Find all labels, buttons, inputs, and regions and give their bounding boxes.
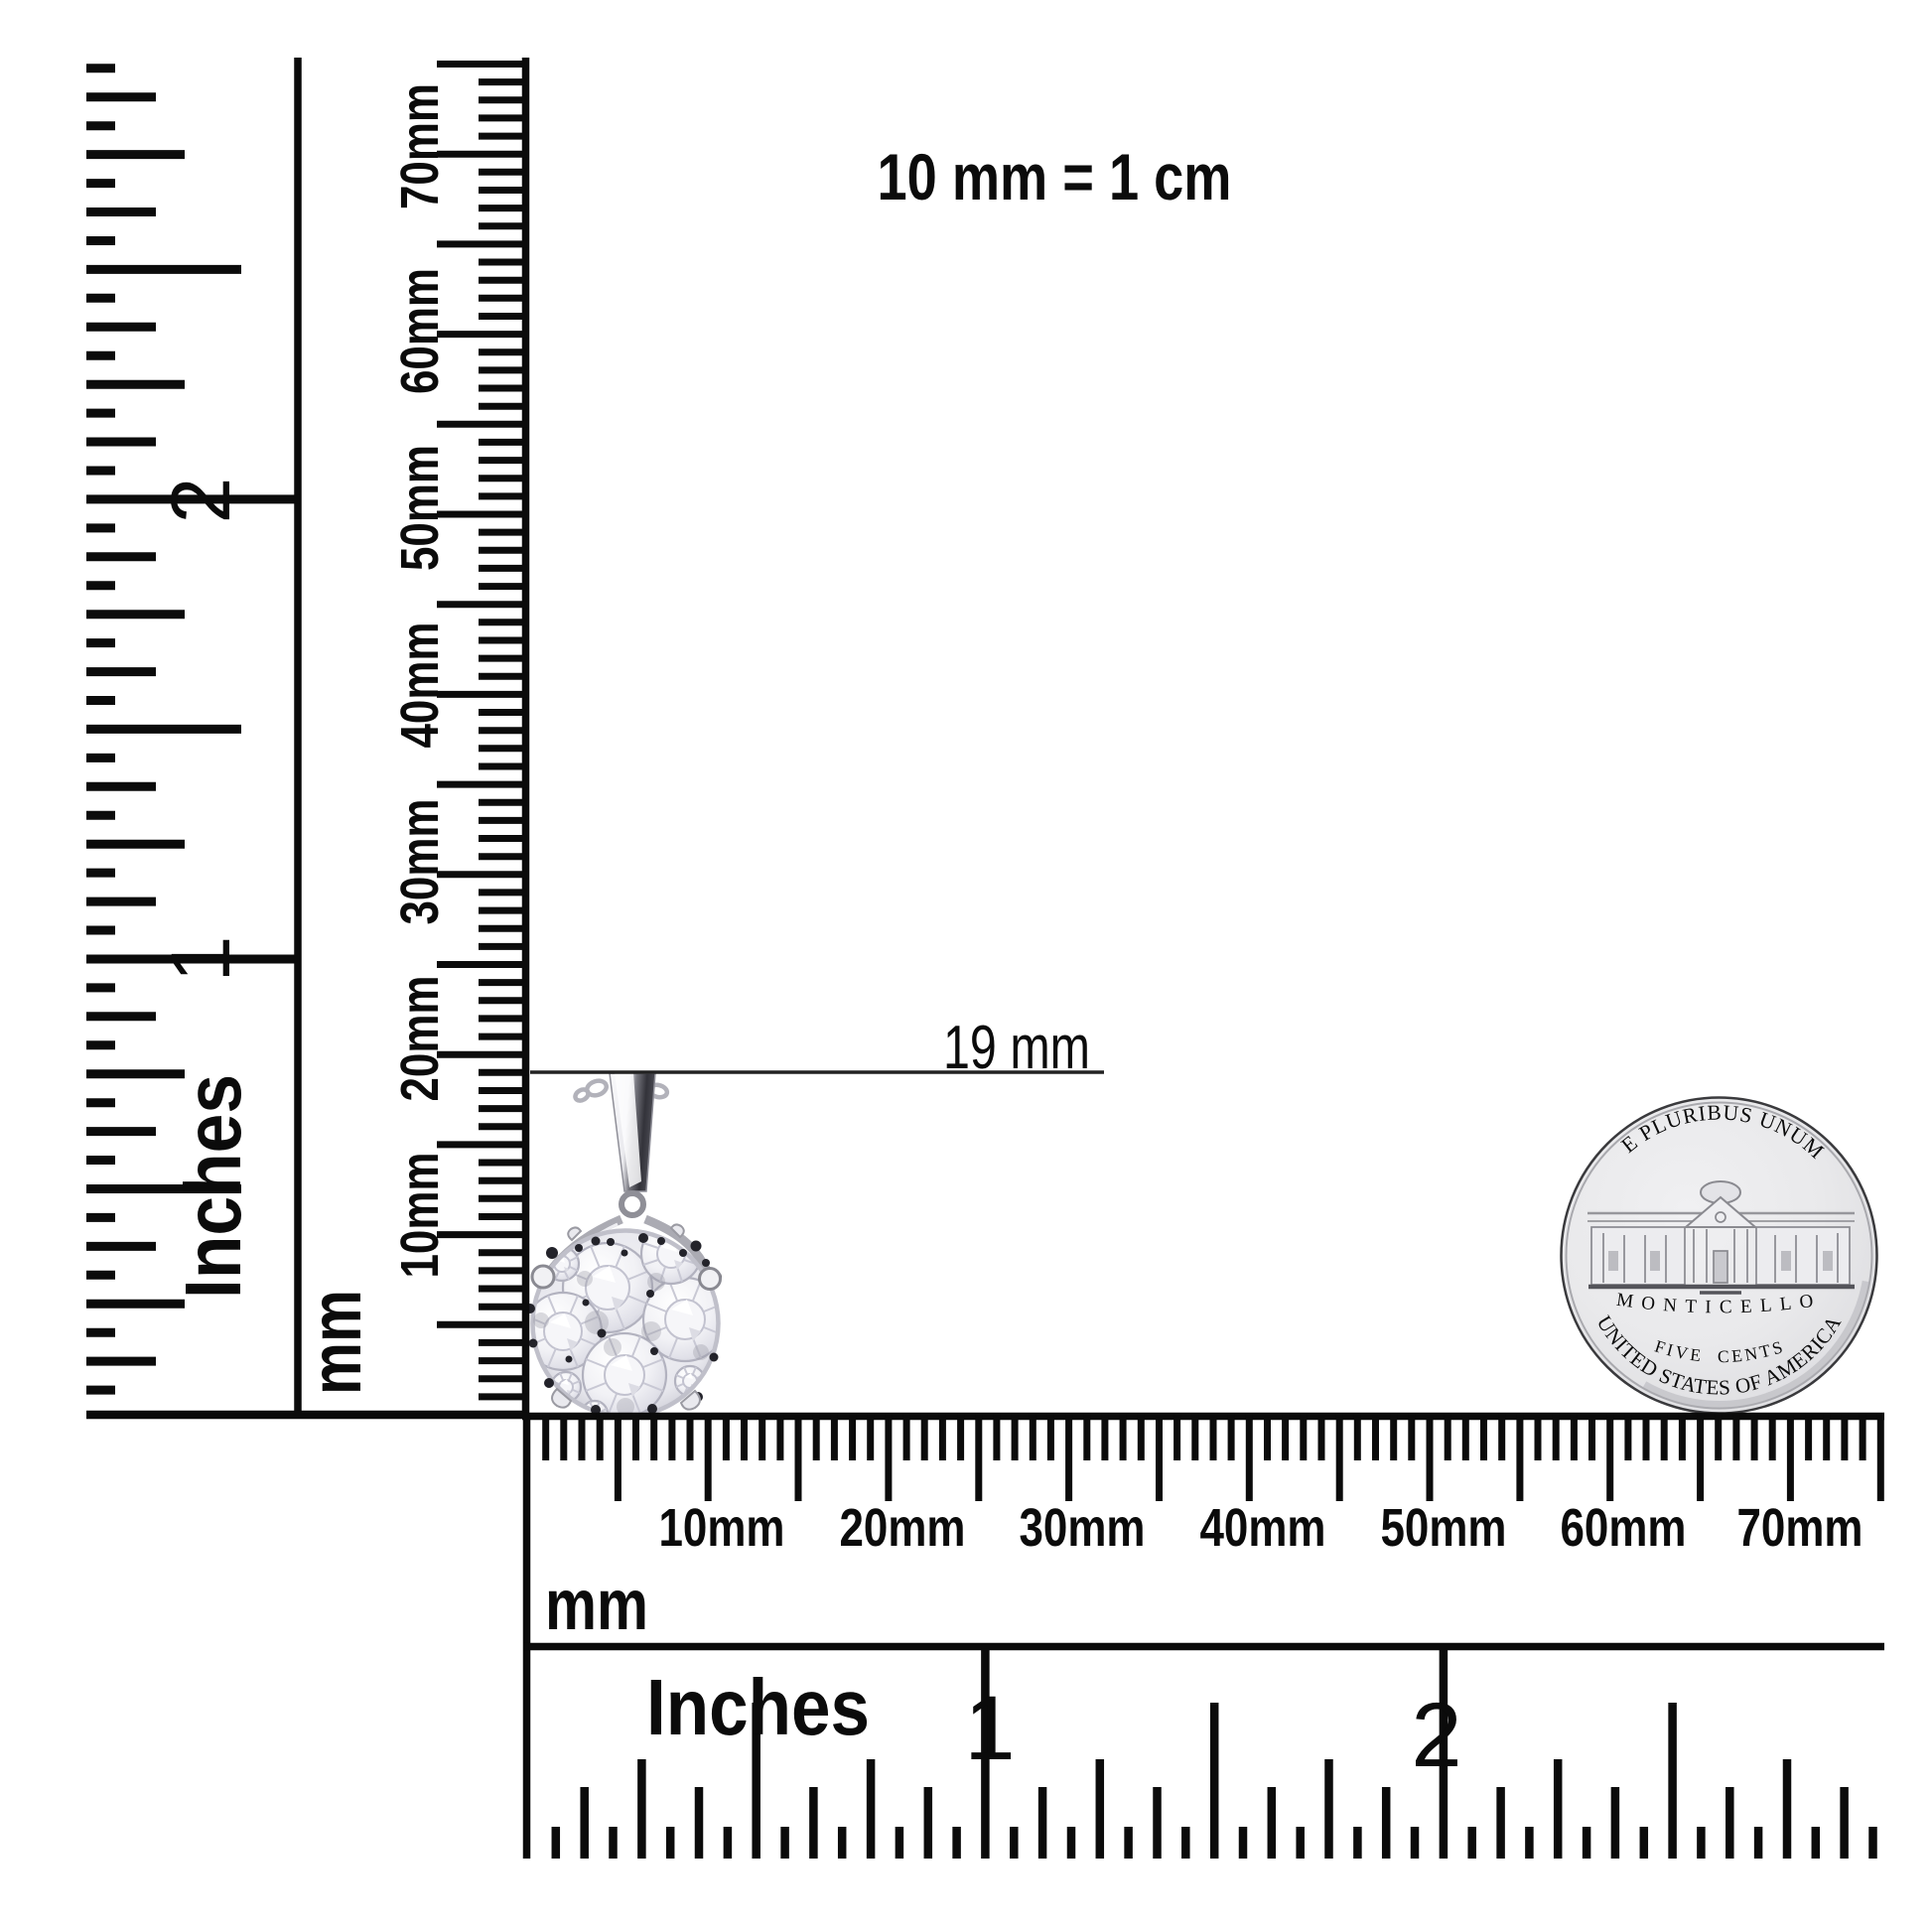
svg-text:60mm: 60mm bbox=[1561, 1498, 1687, 1558]
svg-text:Inches: Inches bbox=[646, 1663, 870, 1751]
svg-text:40mm: 40mm bbox=[1200, 1498, 1326, 1558]
svg-text:2: 2 bbox=[154, 478, 247, 524]
svg-text:mm: mm bbox=[297, 1290, 376, 1395]
svg-text:50mm: 50mm bbox=[1381, 1498, 1507, 1558]
svg-text:10 mm = 1 cm: 10 mm = 1 cm bbox=[878, 140, 1232, 213]
svg-text:mm: mm bbox=[545, 1566, 648, 1645]
svg-text:10mm: 10mm bbox=[390, 1153, 450, 1279]
svg-text:40mm: 40mm bbox=[390, 622, 450, 749]
svg-text:50mm: 50mm bbox=[390, 445, 450, 571]
svg-text:20mm: 20mm bbox=[840, 1498, 966, 1558]
svg-text:30mm: 30mm bbox=[1020, 1498, 1146, 1558]
svg-text:30mm: 30mm bbox=[390, 799, 450, 925]
svg-text:19 mm: 19 mm bbox=[943, 1014, 1090, 1082]
svg-text:2: 2 bbox=[1411, 1685, 1461, 1786]
svg-text:70mm: 70mm bbox=[390, 83, 450, 209]
svg-text:10mm: 10mm bbox=[659, 1498, 785, 1558]
svg-text:1: 1 bbox=[964, 1678, 1015, 1779]
svg-text:70mm: 70mm bbox=[1737, 1498, 1863, 1558]
svg-text:20mm: 20mm bbox=[390, 976, 450, 1102]
svg-text:60mm: 60mm bbox=[390, 268, 450, 394]
svg-text:1: 1 bbox=[154, 936, 247, 983]
svg-text:Inches: Inches bbox=[169, 1074, 257, 1299]
